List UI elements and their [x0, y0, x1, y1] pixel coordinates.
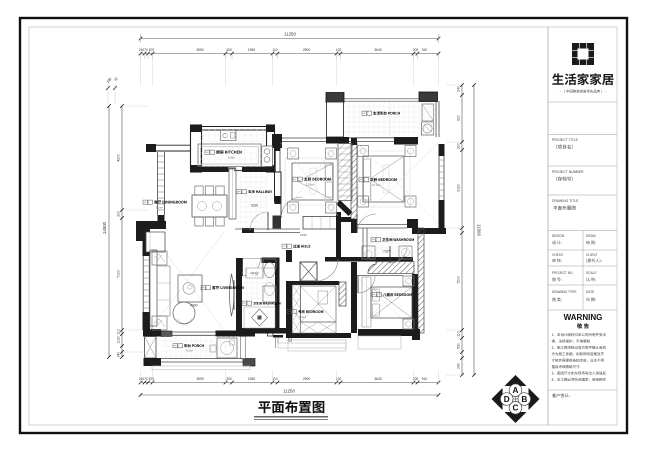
svg-text:110: 110 [457, 331, 461, 337]
svg-text:3120: 3120 [457, 184, 461, 192]
svg-text:2900: 2900 [303, 48, 311, 52]
svg-text:3640: 3640 [374, 377, 382, 381]
svg-text:910: 910 [422, 48, 428, 52]
svg-text:2900: 2900 [303, 377, 311, 381]
svg-text:910: 910 [422, 377, 428, 381]
svg-text:870: 870 [149, 377, 155, 381]
svg-text:110: 110 [117, 329, 121, 335]
svg-text:300: 300 [226, 377, 232, 381]
svg-text:1930: 1930 [300, 233, 307, 237]
svg-text:240: 240 [457, 86, 461, 92]
svg-text:DRAWING TYPE: DRAWING TYPE [552, 290, 576, 294]
svg-text:110: 110 [272, 377, 277, 381]
svg-text:M: M [288, 338, 292, 344]
svg-text:DRAWING TITLE: DRAWING TITLE [552, 199, 579, 203]
svg-text:DESIGN: DESIGN [552, 234, 565, 238]
svg-text:10.1m²: 10.1m² [372, 183, 380, 187]
svg-text:3640: 3640 [374, 48, 382, 52]
svg-text:200: 200 [413, 48, 419, 52]
svg-text:14500: 14500 [102, 221, 107, 234]
svg-text:240: 240 [457, 363, 461, 369]
svg-text:300: 300 [117, 211, 121, 217]
svg-text:11560: 11560 [477, 224, 482, 236]
svg-text:6.3m²: 6.3m² [299, 315, 306, 319]
svg-text:7100: 7100 [117, 270, 121, 278]
svg-text:70: 70 [144, 48, 148, 52]
svg-text:1950: 1950 [248, 377, 256, 381]
svg-text:13.6m²: 13.6m² [306, 183, 314, 187]
svg-text:6.9m²: 6.9m² [228, 156, 235, 160]
svg-text:300: 300 [457, 143, 461, 149]
svg-text:SCALE: SCALE [586, 271, 596, 275]
svg-text:D: D [504, 395, 510, 404]
svg-text:4200: 4200 [117, 154, 121, 162]
svg-text:1130: 1130 [117, 336, 121, 343]
svg-text:7375: 7375 [383, 250, 391, 254]
svg-text:B: B [521, 395, 527, 404]
svg-text:3590: 3590 [196, 377, 204, 381]
svg-text:620: 620 [457, 115, 461, 121]
svg-text:PROJECT NO.: PROJECT NO. [552, 271, 573, 275]
svg-text:530: 530 [457, 343, 461, 349]
svg-text:3190: 3190 [251, 204, 258, 208]
svg-text:870: 870 [149, 48, 155, 52]
svg-text:240: 240 [117, 352, 121, 358]
svg-text:C: C [513, 404, 519, 413]
svg-text:70: 70 [144, 377, 148, 381]
svg-text:300: 300 [226, 48, 232, 52]
svg-text:WARNING: WARNING [564, 313, 603, 322]
svg-text:4.2m²: 4.2m² [186, 349, 193, 353]
svg-text:3590: 3590 [196, 48, 204, 52]
svg-text:CLIENT: CLIENT [586, 253, 597, 257]
svg-text:9.2m²: 9.2m² [156, 206, 163, 210]
svg-text:PROJECT NUMBER: PROJECT NUMBER [552, 170, 584, 174]
svg-text:110: 110 [272, 48, 277, 52]
svg-text:7200: 7200 [457, 276, 461, 284]
svg-text:A: A [513, 386, 519, 395]
svg-text:PROJECT TITLE: PROJECT TITLE [552, 138, 579, 142]
svg-text:4300: 4300 [190, 304, 198, 308]
svg-text:11250: 11250 [284, 32, 296, 37]
svg-text:120: 120 [336, 48, 342, 52]
svg-text:CHECK: CHECK [552, 253, 564, 257]
svg-text:DRAW: DRAW [586, 234, 596, 238]
svg-text:DATE: DATE [586, 290, 594, 294]
svg-text:11250: 11250 [283, 389, 295, 394]
svg-text:1950: 1950 [248, 48, 256, 52]
